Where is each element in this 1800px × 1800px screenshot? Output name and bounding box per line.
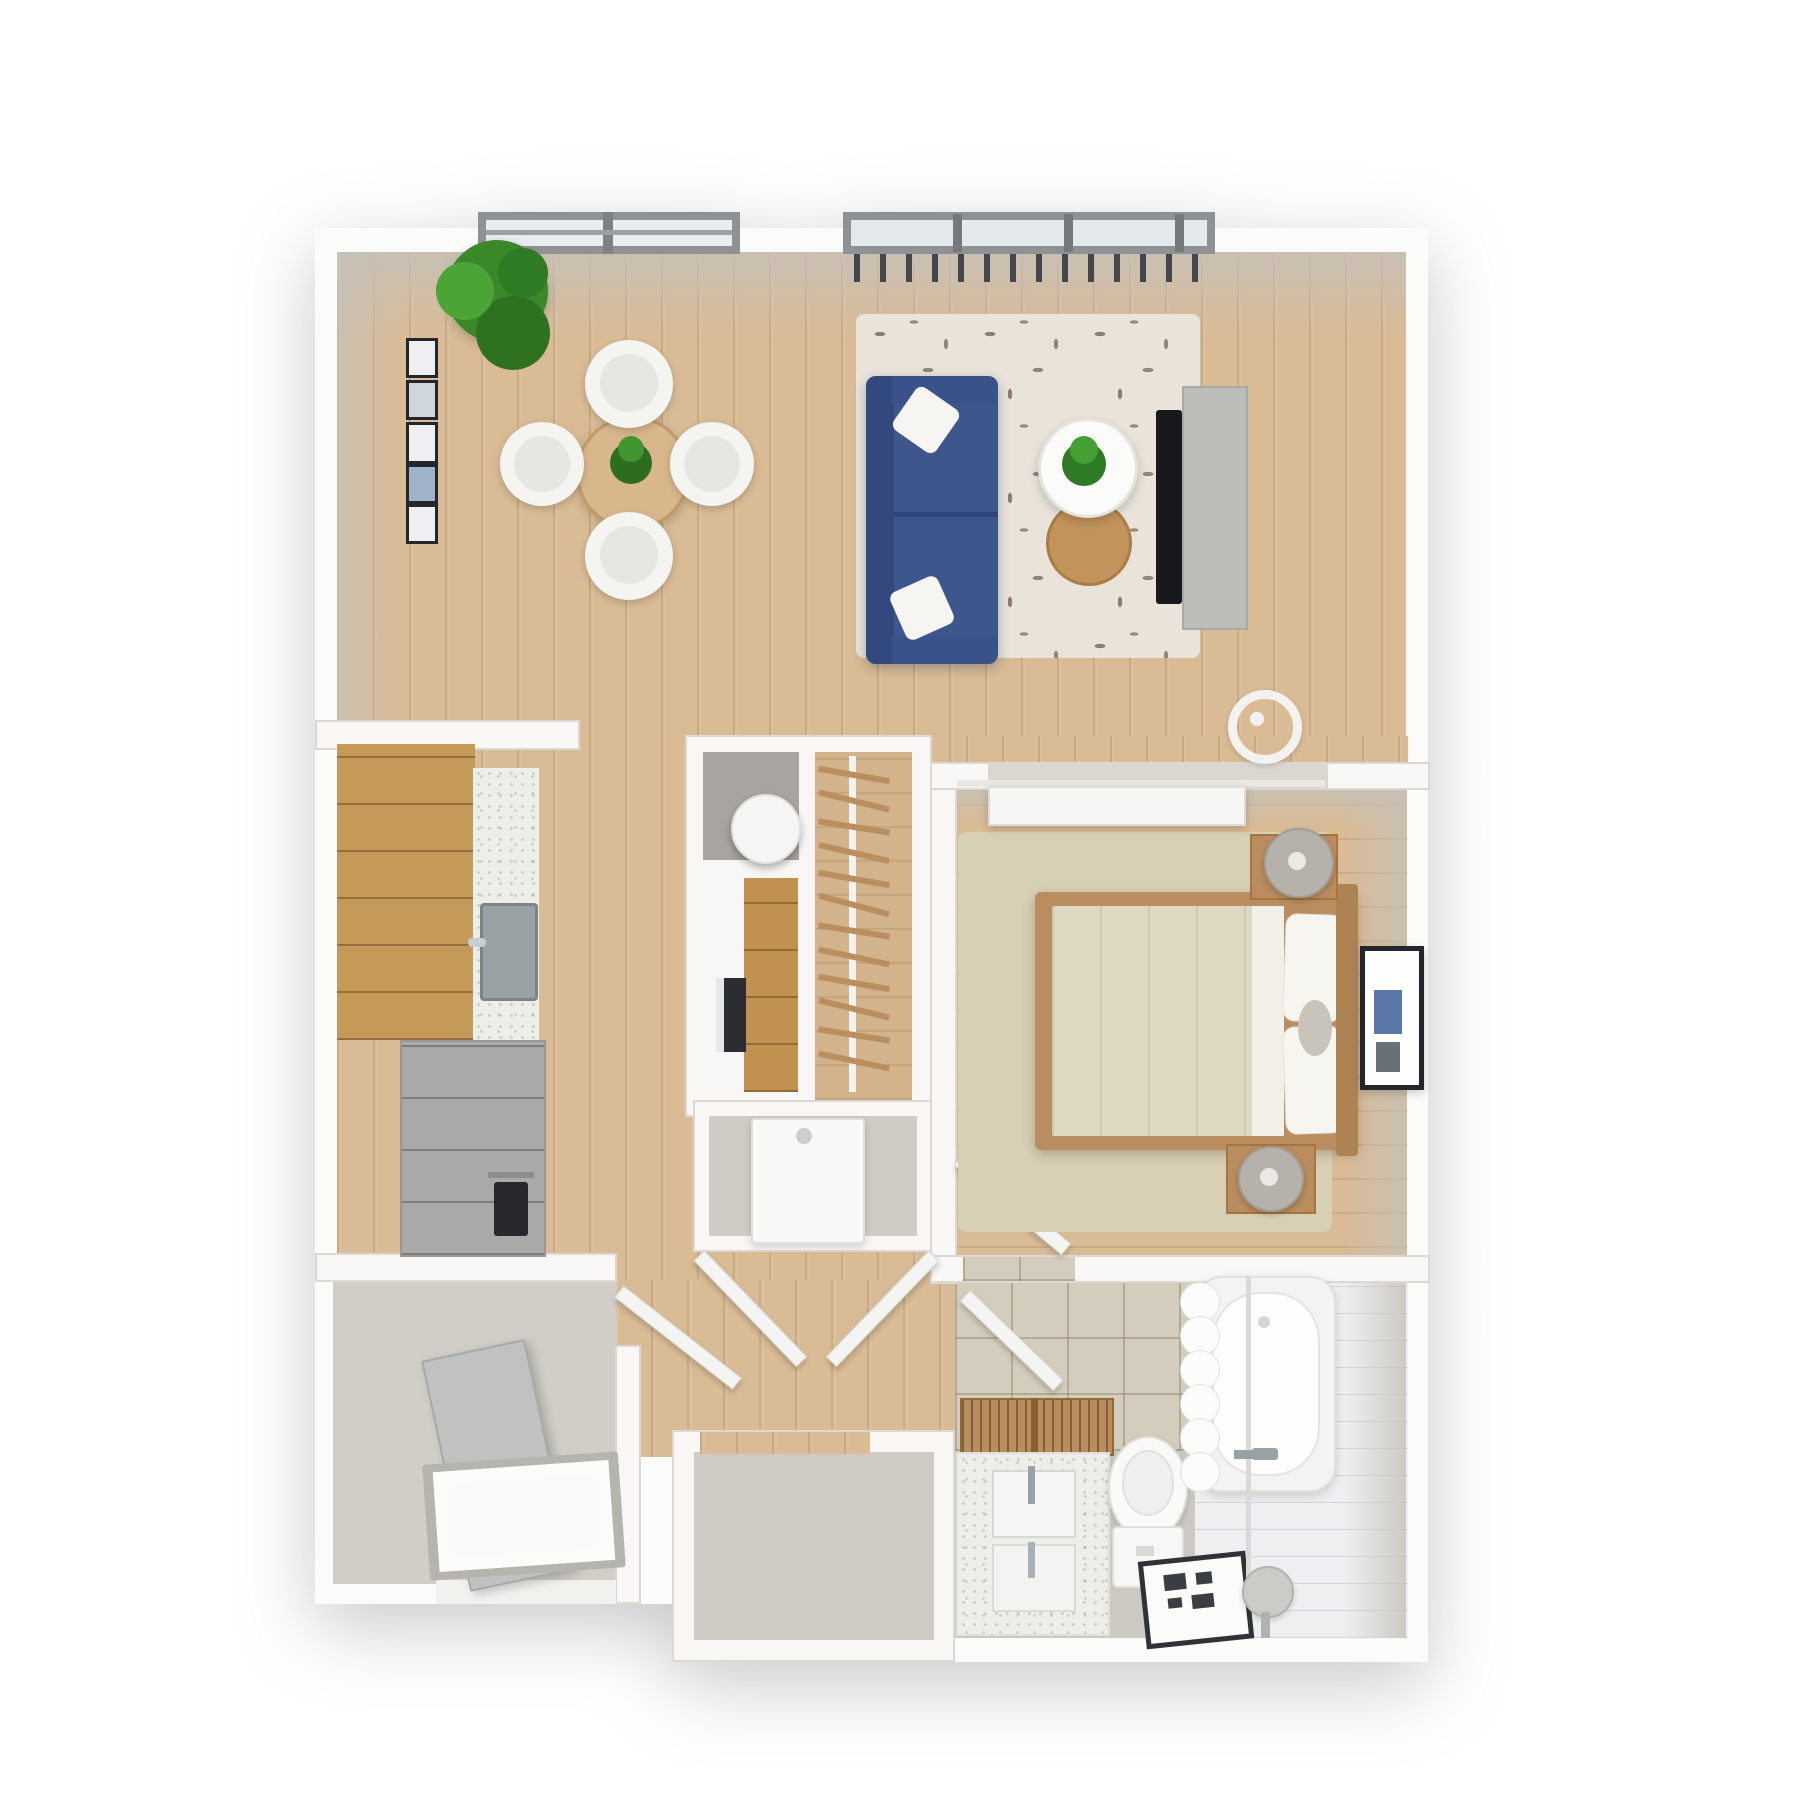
kitchen-sink [480, 903, 538, 1001]
bathroom-door-opening [963, 1257, 1075, 1281]
corner-plant-foliage-4 [498, 248, 548, 298]
window-mullion-horizontal [486, 230, 732, 235]
bath-mat-pattern-3 [1168, 1597, 1183, 1608]
tv-console [1182, 386, 1248, 630]
floor-lamp-hub [1250, 712, 1264, 726]
bathroom-east-wall-shade [1344, 1283, 1406, 1638]
sofa-backrest [866, 376, 894, 664]
lamp-south-finial [1260, 1168, 1278, 1186]
bedroom-west-wall [930, 762, 957, 1284]
dining-chair-west-seat [514, 436, 570, 492]
plan-shapes-layer [0, 0, 1800, 1800]
tv-screen [1156, 410, 1182, 604]
bathtub-faucet [1252, 1448, 1278, 1460]
vanity-faucet-reflection [1028, 1542, 1035, 1578]
dining-chair-east-seat [684, 436, 740, 492]
lamp-north-finial [1288, 852, 1306, 870]
toilet-seat [1122, 1450, 1174, 1516]
shower-stool [1242, 1566, 1294, 1618]
sofa-cushion-seam [894, 512, 998, 517]
living-west-wall-shade [337, 252, 403, 738]
pantry-cabinet [744, 878, 798, 1092]
microwave-trim [716, 978, 724, 1052]
closet-hanging-rod [849, 756, 856, 1092]
picture-frame-2 [406, 380, 438, 420]
dining-centerpiece-plant-top [618, 436, 644, 462]
oven-handle [488, 1172, 534, 1178]
shower-rod [1246, 1276, 1251, 1600]
shower-stool-stem [1261, 1612, 1270, 1638]
bath-mat-pattern-1 [1163, 1573, 1187, 1591]
picture-frame-4 [406, 464, 438, 504]
kitchen-south-wall [315, 1253, 617, 1282]
storage-nook-floor [694, 1452, 934, 1640]
floor-plan-render [0, 0, 1800, 1800]
bath-mat-pattern-4 [1195, 1571, 1212, 1585]
balcony-slider-glass [851, 220, 1207, 246]
slider-mullion-2 [1064, 214, 1073, 252]
bed-headboard [1336, 884, 1358, 1156]
vanity-faucet [1028, 1466, 1035, 1504]
bed-sheet-band [1252, 906, 1284, 1136]
doormat [433, 1460, 616, 1572]
water-heater [731, 794, 801, 864]
shower-curtain-scallop-6 [1180, 1452, 1220, 1492]
washer-dial [796, 1128, 812, 1144]
bedroom-sliding-panel [988, 786, 1246, 826]
apartment-plan [0, 0, 1800, 1800]
dining-chair-south-seat [600, 526, 658, 584]
living-room-floor-east-strip [930, 736, 1408, 764]
kitchen-cabinets [337, 744, 475, 1040]
front-door-sill [436, 1580, 616, 1604]
picture-frame-1 [406, 338, 438, 378]
bed-duvet [1052, 906, 1254, 1136]
storage-nook-opening [700, 1432, 870, 1454]
bedroom-wall-art-blue-block [1374, 990, 1402, 1034]
bathtub-drain [1258, 1316, 1270, 1328]
floor-lamp-ring [1228, 690, 1302, 764]
corner-plant-foliage-3 [436, 262, 494, 320]
dining-chair-north-seat [600, 354, 658, 412]
bed-accent-pillow [1298, 1000, 1332, 1056]
toilet-flush-button [1136, 1546, 1154, 1556]
microwave [724, 978, 746, 1052]
coffee-table-plant-top [1070, 436, 1098, 464]
bedroom-wall-art-gray-block [1376, 1042, 1400, 1072]
towel-organizer-divider [1031, 1398, 1038, 1452]
bath-mat-pattern-2 [1191, 1593, 1214, 1609]
picture-frame-5 [406, 504, 438, 544]
oven-door [494, 1182, 528, 1236]
picture-frame-3 [406, 422, 438, 464]
slider-mullion-3 [1175, 214, 1184, 252]
sofa-armrest-south [892, 636, 998, 664]
slider-mullion-1 [953, 214, 962, 252]
shower-handle [1234, 1450, 1254, 1459]
kitchen-sink-faucet [468, 938, 486, 947]
